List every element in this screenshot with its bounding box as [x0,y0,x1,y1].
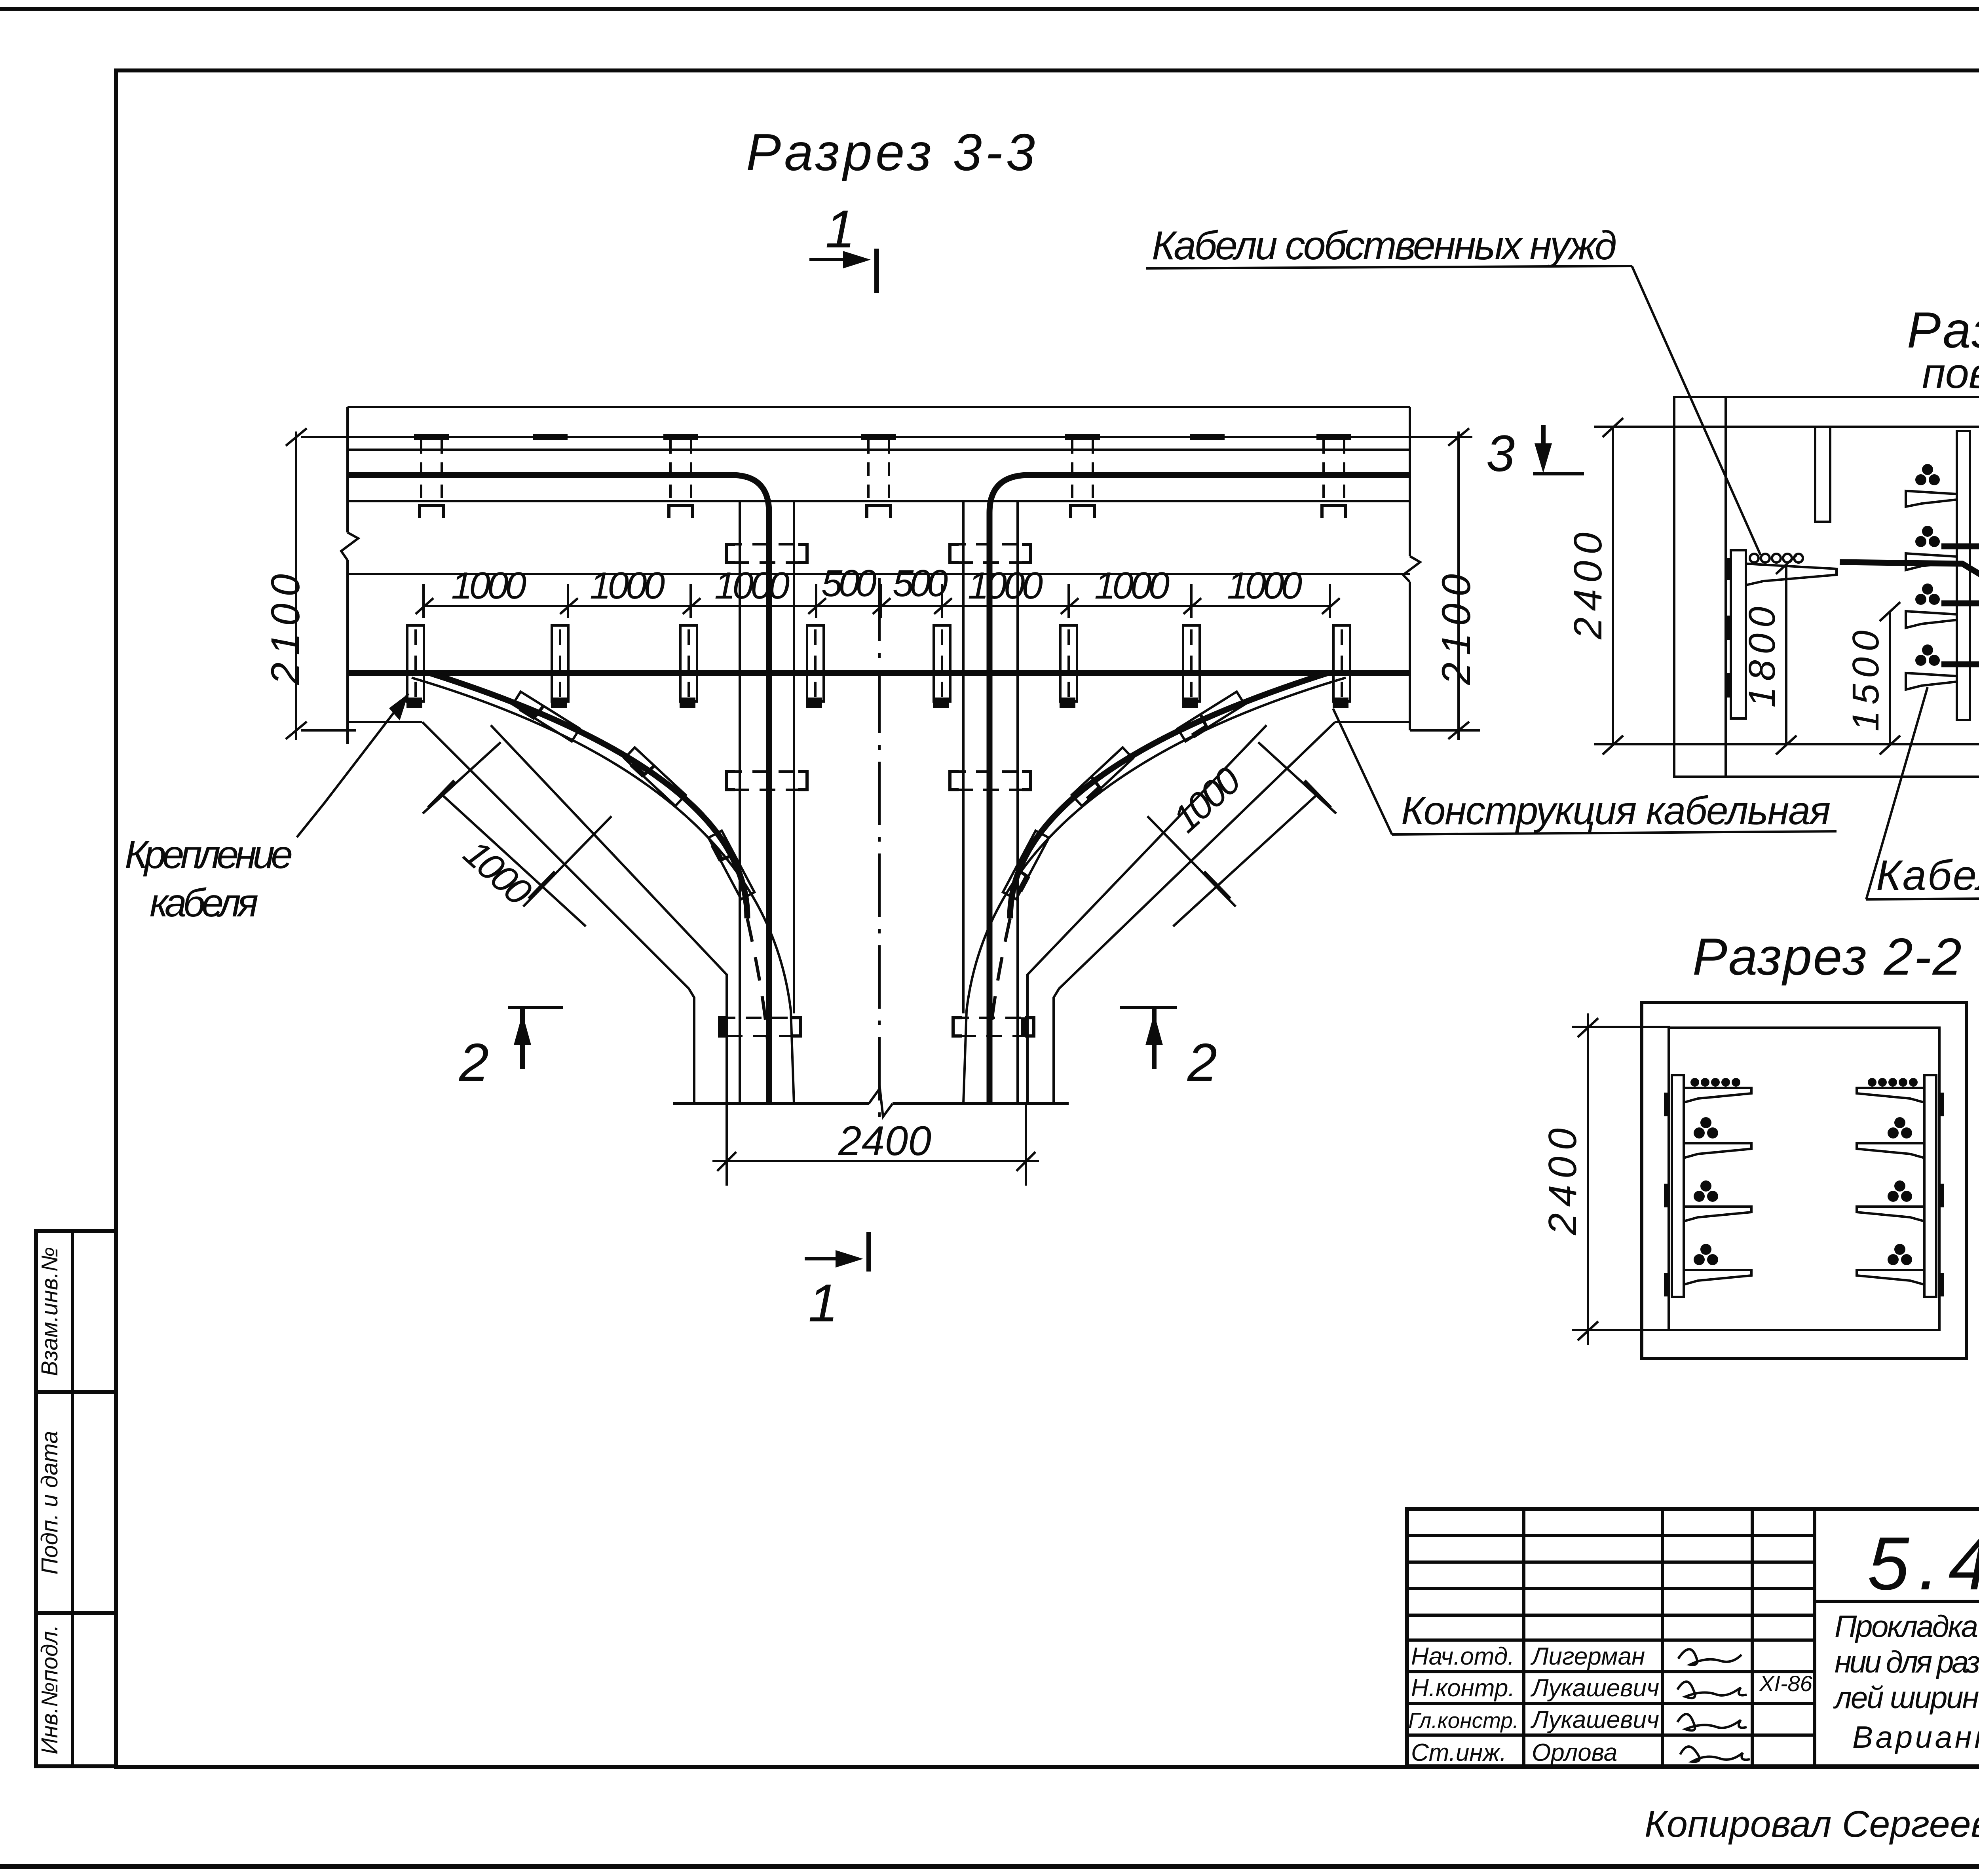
svg-text:Разрез 2-2: Разрез 2-2 [1692,928,1962,986]
svg-text:нии для разветвления тонне-: нии для разветвления тонне- [1835,1644,1979,1679]
svg-text:Лукашевич: Лукашевич [1530,1675,1659,1702]
svg-text:Лукашевич: Лукашевич [1530,1706,1659,1733]
svg-text:Копировал Сергеева: Копировал Сергеева [1645,1803,1979,1845]
svg-text:500: 500 [893,562,948,604]
svg-text:1000: 1000 [1227,565,1302,607]
svg-text:1000: 1000 [590,565,665,607]
svg-text:Конструкция кабельная: Конструкция кабельная [1401,789,1831,833]
svg-text:лей шириной 2100и 2400мм.: лей шириной 2100и 2400мм. [1833,1680,1979,1715]
svg-text:повернуто: повернуто [1922,349,1979,397]
svg-text:Гл.констр.: Гл.констр. [1408,1708,1519,1733]
svg-text:Лигерман: Лигерман [1530,1643,1645,1670]
svg-text:1: 1 [825,199,855,259]
svg-text:кабеля: кабеля [150,881,258,925]
svg-text:3: 3 [1486,424,1515,482]
svg-text:XI-86: XI-86 [1759,1671,1813,1696]
svg-text:Н.контр.: Н.контр. [1411,1675,1515,1702]
svg-text:Разрез 3-3: Разрез 3-3 [746,123,1035,181]
svg-text:Инв.№подл.: Инв.№подл. [37,1625,63,1754]
svg-text:2: 2 [1187,1032,1217,1092]
svg-text:5.407-74.490Д: 5.407-74.490Д [1867,1522,1979,1606]
svg-text:1000: 1000 [1094,565,1170,607]
svg-text:Нач.отд.: Нач.отд. [1411,1643,1514,1670]
svg-text:Орлова: Орлова [1532,1739,1617,1766]
svg-text:2400: 2400 [838,1118,931,1164]
svg-text:1000: 1000 [968,565,1043,607]
svg-text:Прокладка кабелей в ушире-: Прокладка кабелей в ушире- [1835,1609,1979,1644]
svg-text:Кабели 110-220кВ: Кабели 110-220кВ [1876,851,1979,899]
svg-text:500: 500 [821,562,877,604]
svg-text:1: 1 [808,1273,838,1333]
svg-text:1000: 1000 [714,565,790,607]
svg-text:Крепление: Крепление [125,833,293,877]
svg-text:Ст.инж.: Ст.инж. [1411,1739,1506,1766]
svg-text:Вариант 1. Пример.: Вариант 1. Пример. [1852,1720,1979,1754]
svg-text:Подп. и дата: Подп. и дата [37,1431,63,1574]
svg-text:Взам.инв.№: Взам.инв.№ [37,1247,63,1376]
svg-text:Кабели собственных нужд: Кабели собственных нужд [1152,223,1617,268]
svg-text:1000: 1000 [451,565,526,607]
svg-text:2: 2 [459,1032,489,1092]
